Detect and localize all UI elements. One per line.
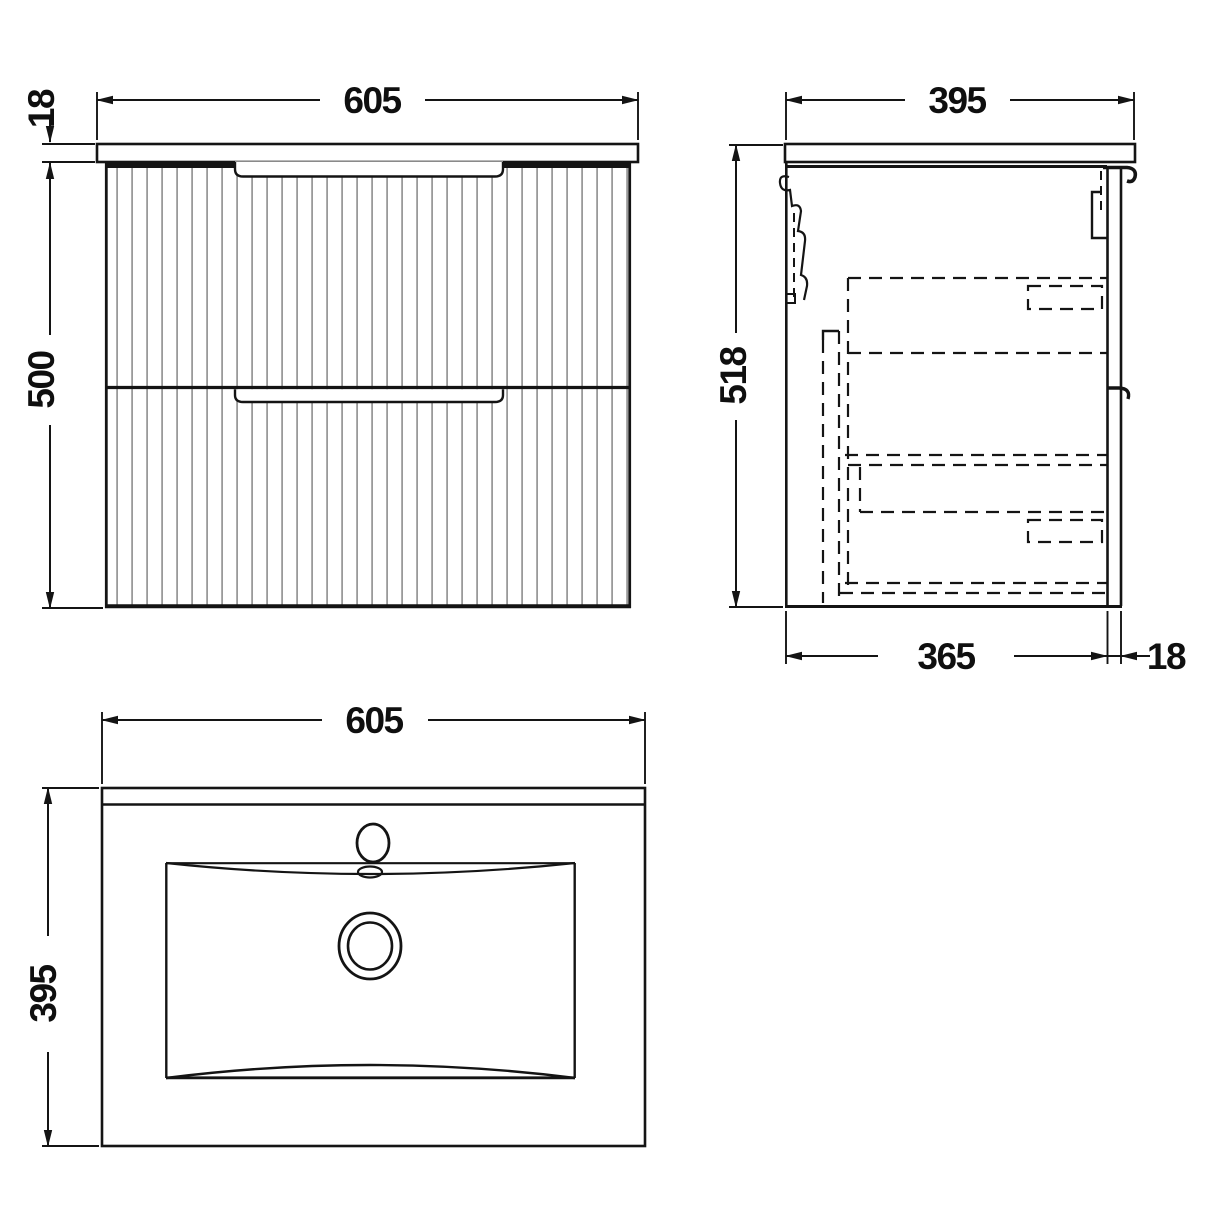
side-depth-label: 395 — [928, 80, 986, 121]
basin-dim-depth: 395 — [23, 788, 99, 1146]
side-dim-carcass-depth: 365 — [786, 611, 1121, 677]
side-carcass-depth-label: 365 — [917, 636, 975, 677]
basin-plan-view: 605 395 — [23, 700, 645, 1146]
front-worktop-thickness-label: 18 — [21, 89, 62, 128]
basin-dim-width: 605 — [102, 700, 645, 784]
front-cabinet — [105, 162, 631, 609]
front-dim-worktop-thickness: 18 — [21, 89, 95, 162]
wall-hanging-bracket — [780, 176, 807, 303]
bottom-drawer-handle-recess — [235, 389, 503, 402]
top-drawer-handle-recess — [235, 162, 503, 177]
side-cabinet-outline — [785, 162, 1135, 607]
basin-depth-label: 395 — [23, 964, 64, 1022]
front-worktop — [97, 144, 638, 162]
side-worktop — [785, 144, 1135, 162]
technical-drawing-canvas: 605 18 500 — [0, 0, 1214, 1214]
bottom-drawer-rail-section — [1028, 520, 1102, 542]
side-dim-depth: 395 — [786, 80, 1134, 140]
front-dim-height: 500 — [21, 163, 103, 608]
basin-outer-edge — [102, 788, 645, 1146]
bottom-drawer-handle-profile — [1108, 388, 1129, 399]
top-drawer-rail-section — [1028, 286, 1102, 309]
side-view: 395 518 365 18 — [713, 80, 1186, 677]
front-view: 605 18 500 — [21, 80, 638, 608]
front-height-label: 500 — [21, 350, 62, 408]
side-front-panel-label: 18 — [1147, 636, 1186, 677]
side-dim-front-panel: 18 — [1108, 636, 1186, 677]
basin-width-label: 605 — [345, 700, 403, 741]
drawer-runner-bracket — [1092, 171, 1107, 238]
front-dim-width: 605 — [97, 80, 638, 140]
side-overall-height-label: 518 — [713, 346, 754, 404]
vanity-technical-drawing: 605 18 500 — [0, 0, 1214, 1214]
front-width-label: 605 — [343, 80, 401, 121]
side-dim-overall-height: 518 — [713, 145, 783, 607]
internal-drawer-construction — [823, 278, 1112, 603]
